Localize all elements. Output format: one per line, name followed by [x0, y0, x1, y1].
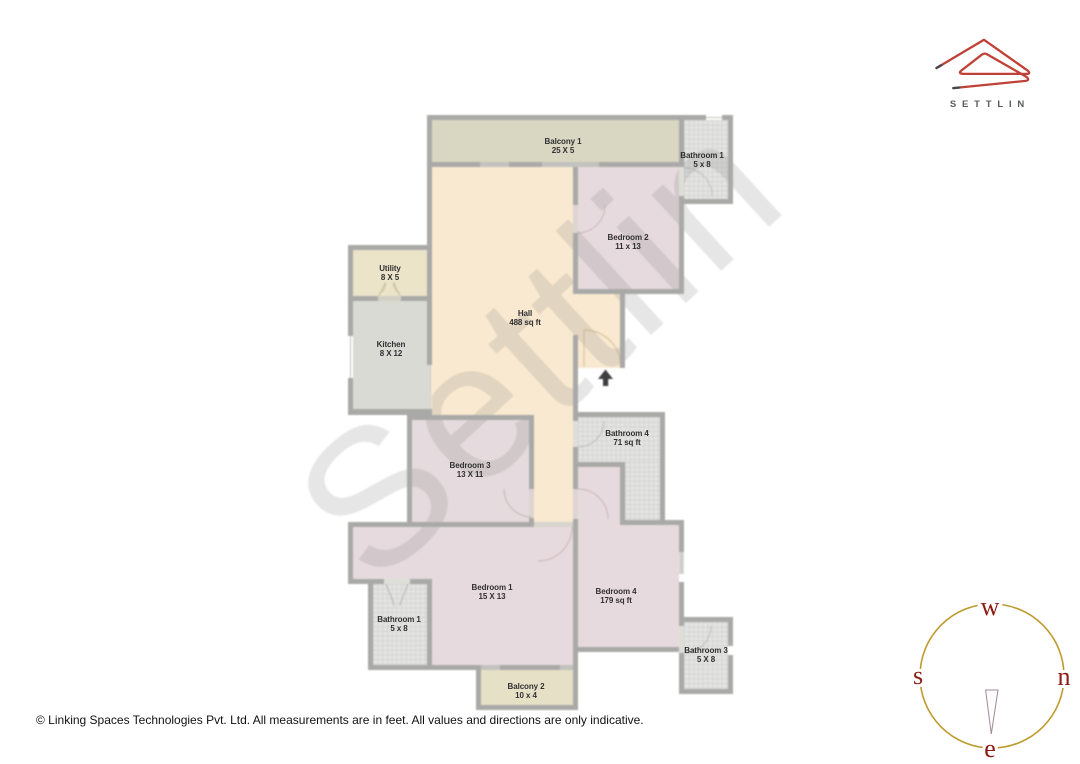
svg-text:e: e — [984, 734, 996, 763]
svg-text:n: n — [1058, 662, 1071, 691]
svg-text:w: w — [981, 592, 1000, 621]
svg-text:s: s — [913, 661, 923, 690]
svg-text:SETTLIN: SETTLIN — [950, 99, 1030, 110]
